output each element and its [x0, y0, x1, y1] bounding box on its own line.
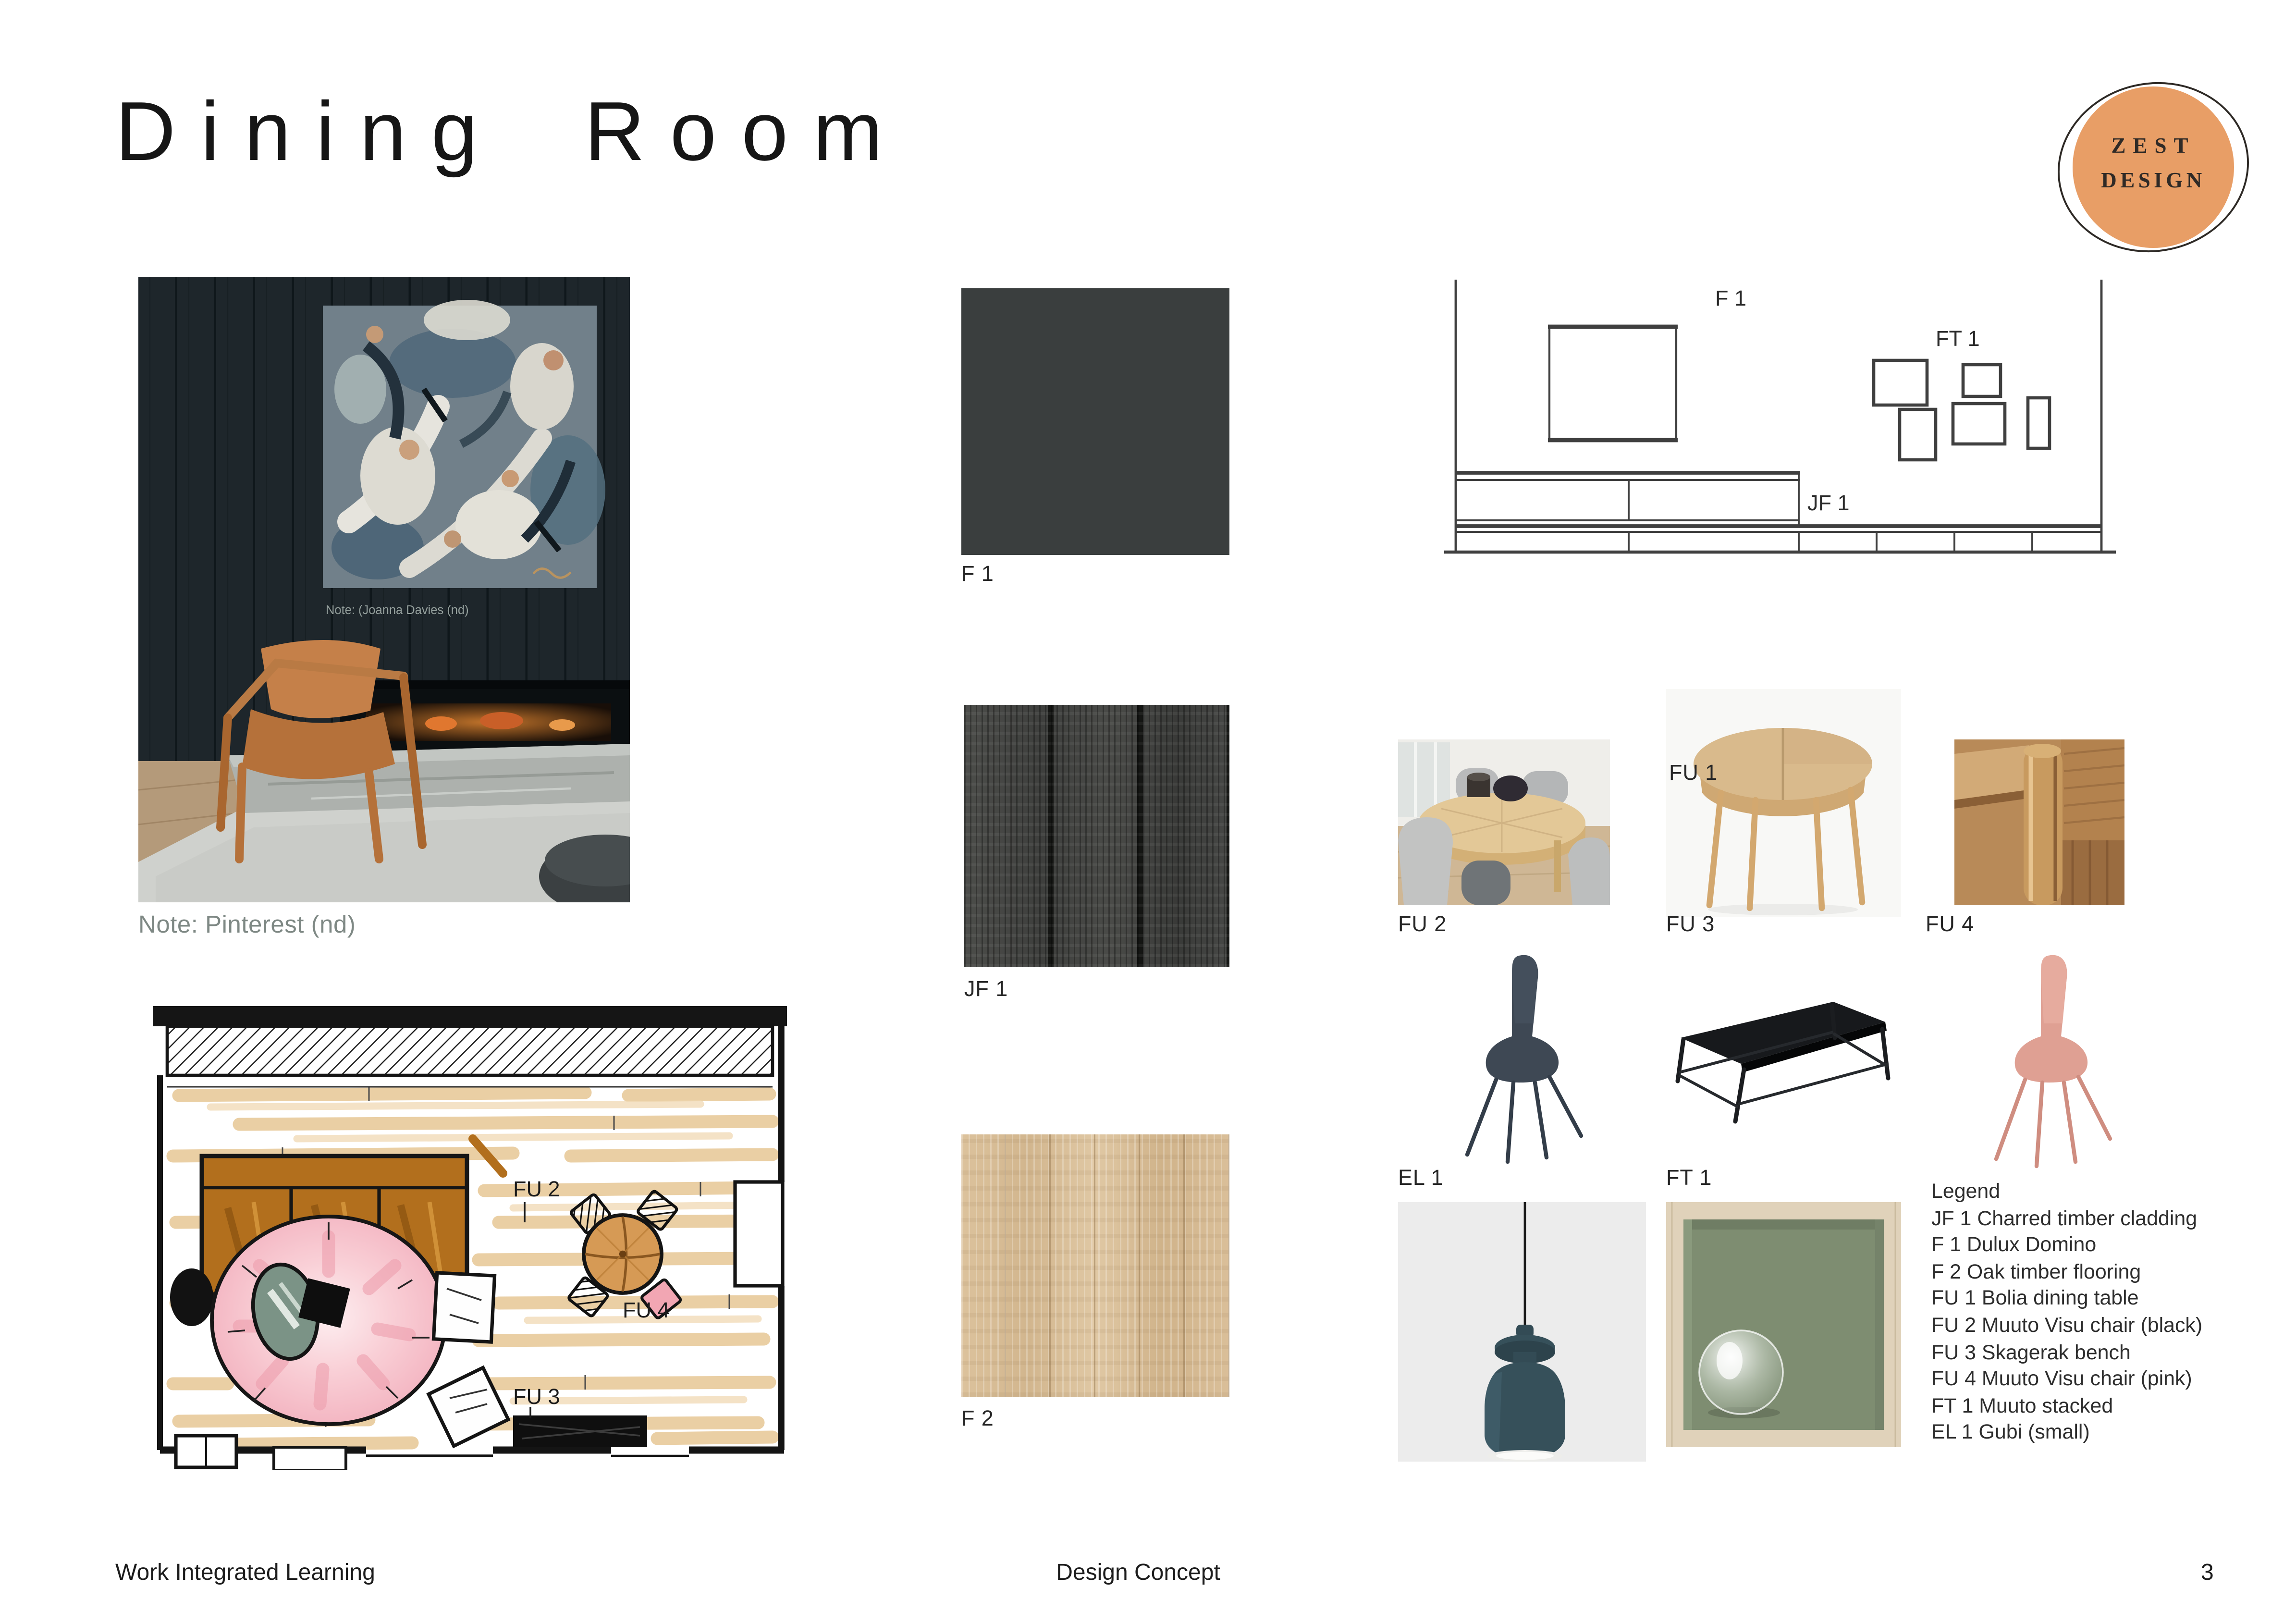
- photo-caption: Note: Pinterest (nd): [138, 911, 356, 940]
- legend-item-fu4: FU 4 Muuto Visu chair (pink): [1931, 1366, 2256, 1393]
- fu4-muuto-visu-chair-pink: [1977, 951, 2129, 1172]
- legend-item-fu1: FU 1 Bolia dining table: [1931, 1286, 2256, 1313]
- legend-item-f2: F 2 Oak timber flooring: [1931, 1259, 2256, 1286]
- swatch-f2-oak-flooring: [961, 1134, 1229, 1397]
- photo-inner-caption: Note: (Joanna Davies (nd): [326, 603, 469, 617]
- oak-joint-detail-photo: [1954, 739, 2124, 905]
- logo-outline-icon: [2052, 66, 2254, 268]
- pendant-lamp-drawing: [1398, 1202, 1646, 1462]
- elevation-drawing: F 1 FT 1 JF 1: [1441, 271, 2119, 559]
- footer-page-number: 3: [2201, 1561, 2214, 1587]
- page-title: Dining Room: [115, 84, 908, 180]
- legend-block: Legend JF 1 Charred timber cladding F 1 …: [1931, 1179, 2256, 1447]
- plan-side-table: [170, 1268, 213, 1326]
- legend-item-el1: EL 1 Gubi (small): [1931, 1420, 2256, 1447]
- dining-table-context-photo: [1398, 739, 1610, 905]
- fu4-label: FU 4: [1926, 912, 1974, 937]
- floor-plan-sketch: FU 2 FU 4 FU 3: [153, 1006, 787, 1470]
- logo-text-zest: ZEST: [2070, 135, 2237, 160]
- el1-gubi-pendant-photo: [1398, 1202, 1646, 1462]
- fu2-muuto-visu-chair-black: [1449, 951, 1600, 1168]
- inspiration-photo: Note: (Joanna Davies (nd): [138, 277, 630, 902]
- fu2-label: FU 2: [1398, 912, 1447, 937]
- plan-label-fu4: FU 4: [623, 1298, 670, 1322]
- swatch-f1-label: F 1: [961, 562, 994, 587]
- swatch-jf1-charred-timber: [964, 705, 1229, 967]
- document-viewport: Dining Room ZEST DESIGN: [0, 0, 2296, 1624]
- fu3-label: FU 3: [1666, 912, 1715, 937]
- elevation-label-f1: F 1: [1715, 286, 1746, 310]
- plan-label-fu2: FU 2: [513, 1177, 560, 1201]
- swatch-jf1-label: JF 1: [964, 977, 1008, 1002]
- plan-label-fu3: FU 3: [513, 1384, 560, 1409]
- legend-item-fu2: FU 2 Muuto Visu chair (black): [1931, 1313, 2256, 1340]
- design-concept-page: Dining Room ZEST DESIGN: [0, 0, 2296, 1624]
- abstract-painting: [323, 300, 605, 588]
- legend-item-jf1: JF 1 Charred timber cladding: [1931, 1206, 2256, 1233]
- fu1-label: FU 1: [1669, 761, 1718, 786]
- el1-label: EL 1: [1398, 1166, 1444, 1191]
- swatch-f2-label: F 2: [961, 1407, 994, 1431]
- elevation-label-ft1: FT 1: [1936, 326, 1980, 351]
- plan-bench: [513, 1415, 647, 1447]
- ft1-label: FT 1: [1666, 1166, 1712, 1191]
- ft1-muuto-stacked-box-photo: [1666, 1202, 1901, 1447]
- zest-design-logo: ZEST DESIGN: [2070, 84, 2240, 254]
- footer-left: Work Integrated Learning: [115, 1561, 375, 1587]
- fu3-skagerak-bench: [1666, 992, 1901, 1129]
- logo-text-design: DESIGN: [2070, 170, 2237, 195]
- plan-top-wall: [153, 1006, 787, 1026]
- legend-item-fu3: FU 3 Skagerak bench: [1931, 1340, 2256, 1367]
- swatch-f1-dulux-domino: [961, 288, 1229, 555]
- fu1-bolia-table-photo: [1666, 689, 1901, 917]
- footer-center: Design Concept: [1056, 1561, 1220, 1587]
- legend-item-ft1: FT 1 Muuto stacked: [1931, 1393, 2256, 1420]
- elevation-label-jf1: JF 1: [1807, 491, 1850, 515]
- legend-item-f1: F 1 Dulux Domino: [1931, 1233, 2256, 1260]
- legend-title: Legend: [1931, 1179, 2256, 1206]
